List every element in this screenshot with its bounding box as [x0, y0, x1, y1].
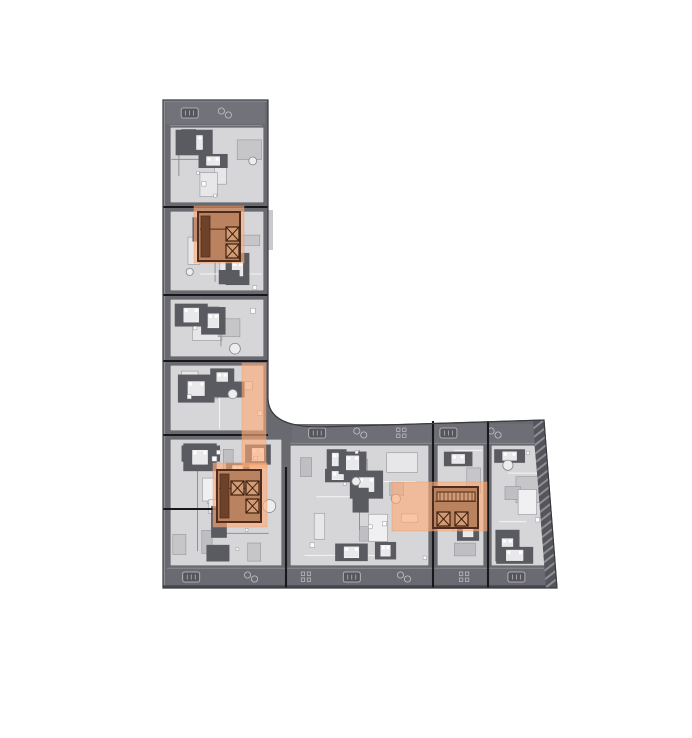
- elevator-icon: [455, 512, 468, 526]
- elevator-icon: [246, 481, 259, 495]
- highlight-corridor[interactable]: [242, 363, 266, 467]
- elevator-icon: [246, 499, 259, 513]
- floorplan-viewport: [0, 0, 692, 738]
- facade-band-top-terrace: [166, 102, 265, 124]
- elevator-icon: [437, 512, 450, 526]
- core-cabinet: [220, 474, 229, 518]
- elevator-icon: [231, 481, 244, 495]
- unit-module-m1[interactable]: [170, 127, 264, 203]
- floor-plan-canvas: [0, 0, 692, 738]
- core-cabinet: [201, 216, 210, 257]
- facade-band-bottom-facade: [167, 569, 549, 585]
- elevator-icon: [226, 244, 239, 258]
- elevator-core-core-2[interactable]: [217, 470, 261, 522]
- elevator-icon: [226, 227, 239, 241]
- elevator-core-core-3[interactable]: [433, 487, 478, 528]
- stair-icon: [437, 492, 475, 501]
- unit-module-m3[interactable]: [170, 299, 264, 357]
- elevator-core-core-1[interactable]: [198, 212, 240, 261]
- building: [163, 100, 557, 588]
